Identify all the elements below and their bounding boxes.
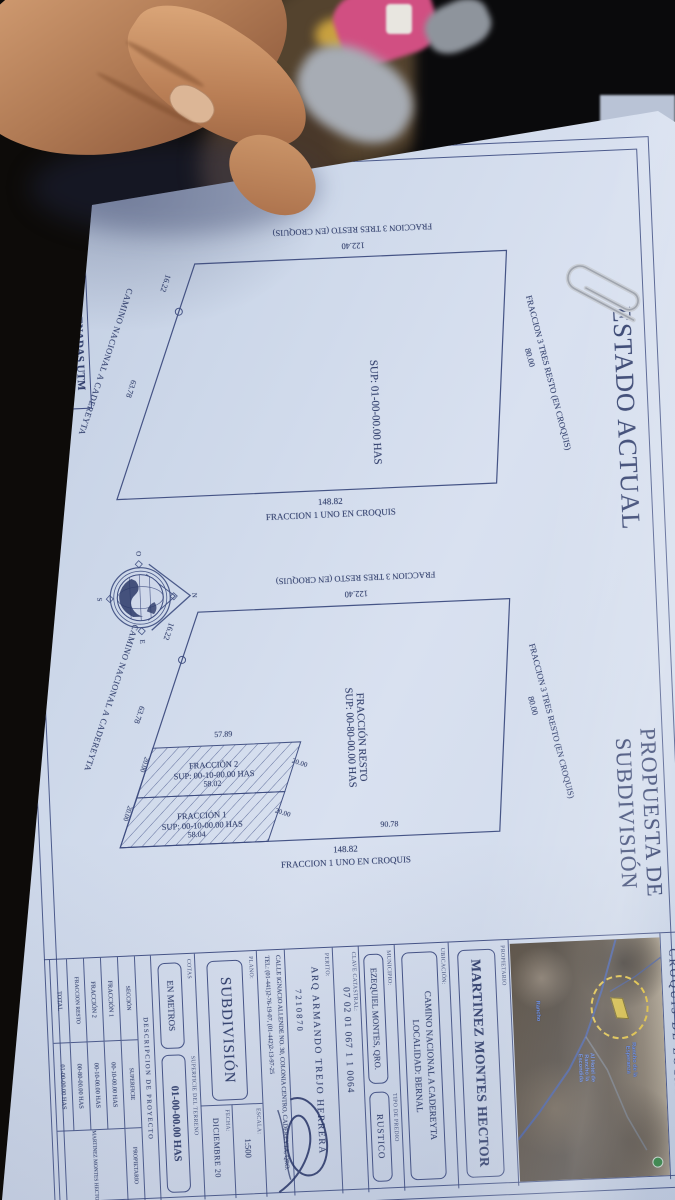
- col-header-propietario-label: PROPIETARIO: [125, 1128, 144, 1200]
- estado-actual-parcel-drawing: FRACCION 3 TRES RESTO (EN CROQUIS) 80.00…: [81, 229, 593, 531]
- superficie-label: SUPERFICIE DEL TERRENO: [189, 1056, 198, 1136]
- fecha-label: FECHA:: [224, 1109, 231, 1132]
- dim-58-04: 58.04: [187, 830, 205, 840]
- utm-coordinates-box: COORDENADAS UTM X=401856.30 Y=2291156.75: [23, 257, 92, 412]
- signature-scribble: [254, 1077, 349, 1200]
- paperclip-icon: [552, 232, 662, 347]
- map-road-blue: [510, 939, 624, 1139]
- col-header-propietario: PROPIETARIO: [125, 1128, 144, 1200]
- photo-canvas: ESTADO ACTUAL PROPUESTA DE SUBDIVISIÓN F…: [0, 0, 675, 1200]
- map-label: Rancho: [534, 1001, 541, 1022]
- map-label: Rancho de la Esperanza: [624, 1034, 638, 1084]
- utm-y: Y=2291156.75: [24, 260, 51, 411]
- plano-row: PLANO: SUBDIVISIÓN ESCALA: 1:500 FECHA: …: [194, 951, 267, 1199]
- compass-e: E: [138, 639, 146, 644]
- ubicacion-label: UBICACIÓN:: [439, 948, 447, 985]
- fecha-cell: FECHA: DICIEMBRE 20: [200, 1104, 235, 1199]
- utm-x: X=401856.30: [44, 259, 71, 410]
- municipio-label: MUNICIPIO:: [385, 950, 393, 985]
- left-dimension: 122.40: [344, 589, 368, 600]
- dim-57-89: 57.89: [214, 729, 232, 739]
- perito-cedula: 7210870: [293, 989, 305, 1033]
- clave-label: CLAVE CATASTRAL:: [350, 952, 359, 1012]
- map-label: Al Hotel de Rancho la Escondida: [576, 1044, 596, 1091]
- cotas-value: EN METROS: [157, 962, 185, 1049]
- map-road-grey: [586, 1034, 647, 1152]
- propietario-label: PROPIETARIO: [499, 945, 507, 986]
- compass-n: N: [190, 593, 198, 598]
- superficie-value: 01-00-00.00 HAS: [161, 1054, 191, 1193]
- tipo-predio-label: TIPO DE PREDIO: [391, 1093, 399, 1142]
- ubicacion-row: UBICACIÓN: CAMINO NACIONAL A CADEREYTA L…: [394, 943, 459, 1191]
- compass-o: O: [134, 551, 142, 556]
- dim-58-02: 58.02: [203, 779, 221, 789]
- tel-line: TEL: (01-441)2-76-19-07, (01-442)2-13-97…: [263, 955, 275, 1074]
- left-dimension: 122.40: [341, 241, 365, 252]
- map-parcel-highlight: [610, 997, 629, 1019]
- compass-s: S: [95, 597, 103, 601]
- parcel-outline-svg: [81, 229, 593, 531]
- summary-table: SECCIÓN SUPERFICIE PROPIETARIO FRACCIÓN …: [46, 956, 145, 1200]
- title-block: CROQUIS DE LOCALIZACIÓN Rancho de: [44, 931, 675, 1200]
- bottle-label: [386, 4, 412, 34]
- right-dimension: 148.82: [333, 843, 358, 854]
- right-dimension: 148.82: [318, 496, 343, 507]
- municipio-value: EZEQUIEL MONTES, QRO.: [363, 953, 389, 1084]
- plano-value: SUBDIVISIÓN: [206, 960, 248, 1101]
- propietario-name: MARTINEZ MONTES HECTOR: [457, 949, 505, 1178]
- dim-90-78: 90.78: [380, 819, 398, 829]
- plano-label: PLANO:: [247, 956, 254, 979]
- escala-value: 1:500: [243, 1138, 254, 1158]
- map-row: Rancho de la Esperanza Al Hotel de Ranch…: [508, 933, 671, 1185]
- perito-label: PERITO:: [323, 953, 330, 977]
- propietario-row: PROPIETARIO MARTINEZ MONTES HECTOR: [448, 940, 519, 1188]
- compass-rose-icon: N S E O: [90, 540, 205, 655]
- satellite-map: Rancho de la Esperanza Al Hotel de Ranch…: [510, 937, 670, 1181]
- cotas-label: COTAS: [185, 959, 192, 979]
- tipo-predio-value: RUSTICO: [369, 1091, 393, 1182]
- table-propietario-merged-cell: MARTINEZ MONTES HECTOR: [57, 1129, 128, 1200]
- table-propietario-name: MARTINEZ MONTES HECTOR: [90, 1130, 99, 1200]
- fecha-value: DICIEMBRE 20: [211, 1118, 223, 1178]
